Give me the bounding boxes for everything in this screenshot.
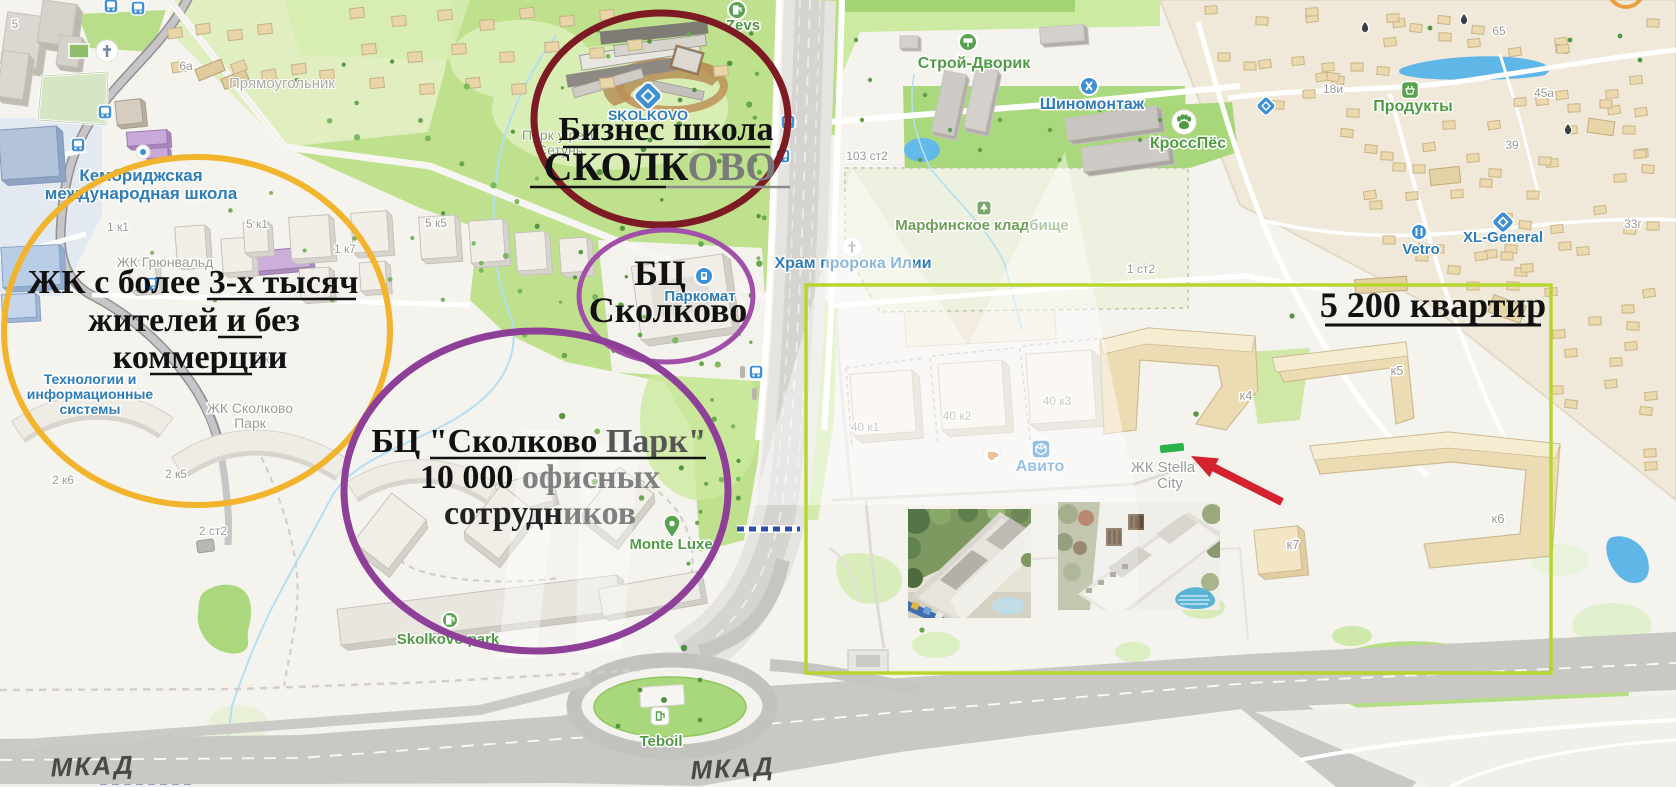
svg-text:Прямоугольник: Прямоугольник	[229, 75, 335, 92]
svg-text:2 ст2: 2 ст2	[199, 524, 228, 538]
svg-text:1 ст2: 1 ст2	[1127, 262, 1156, 276]
svg-text:Продукты: Продукты	[1373, 98, 1453, 115]
svg-text:БЦ "Сколково Парк": БЦ "Сколково Парк"	[371, 423, 706, 460]
svg-text:Сколково: Сколково	[589, 290, 748, 330]
svg-text:к6: к6	[1492, 511, 1505, 526]
svg-text:БЦ: БЦ	[634, 253, 686, 293]
svg-text:Парк: Парк	[234, 415, 267, 431]
svg-text:МКАД: МКАД	[690, 751, 776, 785]
svg-text:10 000 офисных: 10 000 офисных	[420, 459, 660, 496]
svg-text:Teboil: Teboil	[639, 733, 682, 750]
svg-text:СКОЛКОВО: СКОЛКОВО	[544, 144, 777, 189]
svg-text:5 200 квартир: 5 200 квартир	[1320, 285, 1546, 325]
svg-text:ЖК Сколково: ЖК Сколково	[207, 400, 293, 416]
svg-text:City: City	[1157, 475, 1183, 492]
svg-text:сотрудников: сотрудников	[444, 495, 636, 532]
svg-text:39: 39	[1505, 138, 1519, 152]
svg-text:Шиномонтаж: Шиномонтаж	[1040, 96, 1145, 113]
svg-text:ЖК с более 3-х тысяч: ЖК с более 3-х тысяч	[28, 264, 359, 301]
svg-text:6а: 6а	[179, 59, 193, 73]
svg-text:к4: к4	[1240, 388, 1253, 403]
svg-text:системы: системы	[60, 401, 121, 417]
svg-text:5: 5	[12, 17, 19, 31]
svg-text:65: 65	[1492, 24, 1506, 38]
svg-text:Vetro: Vetro	[1402, 241, 1440, 258]
svg-text:33г: 33г	[1624, 217, 1642, 231]
svg-text:103 ст2: 103 ст2	[846, 149, 888, 163]
svg-text:45а: 45а	[1534, 86, 1554, 100]
svg-text:18и: 18и	[1323, 82, 1343, 96]
svg-text:2 к5: 2 к5	[165, 467, 187, 481]
svg-text:2 к6: 2 к6	[52, 473, 74, 487]
svg-text:ЖК Stella: ЖК Stella	[1131, 459, 1196, 476]
svg-text:к7: к7	[1287, 537, 1300, 552]
svg-text:жителей и без: жителей и без	[88, 302, 300, 339]
svg-text:Monte Luxe: Monte Luxe	[629, 536, 712, 553]
svg-text:Строй-Дворик: Строй-Дворик	[918, 55, 1032, 72]
svg-text:к5: к5	[1391, 363, 1404, 378]
svg-text:XL-General: XL-General	[1463, 229, 1543, 246]
svg-text:Бизнес школа: Бизнес школа	[559, 111, 774, 148]
svg-text:информационные: информационные	[27, 386, 154, 402]
svg-text:5 к1: 5 к1	[246, 217, 268, 231]
svg-text:МКАД: МКАД	[50, 750, 135, 783]
svg-text:1 к1: 1 к1	[107, 220, 129, 234]
svg-text:5 к5: 5 к5	[425, 216, 447, 230]
svg-text:коммерции: коммерции	[113, 339, 288, 376]
svg-text:1 к7: 1 к7	[334, 242, 356, 256]
svg-text:КроссПёс: КроссПёс	[1150, 135, 1226, 152]
